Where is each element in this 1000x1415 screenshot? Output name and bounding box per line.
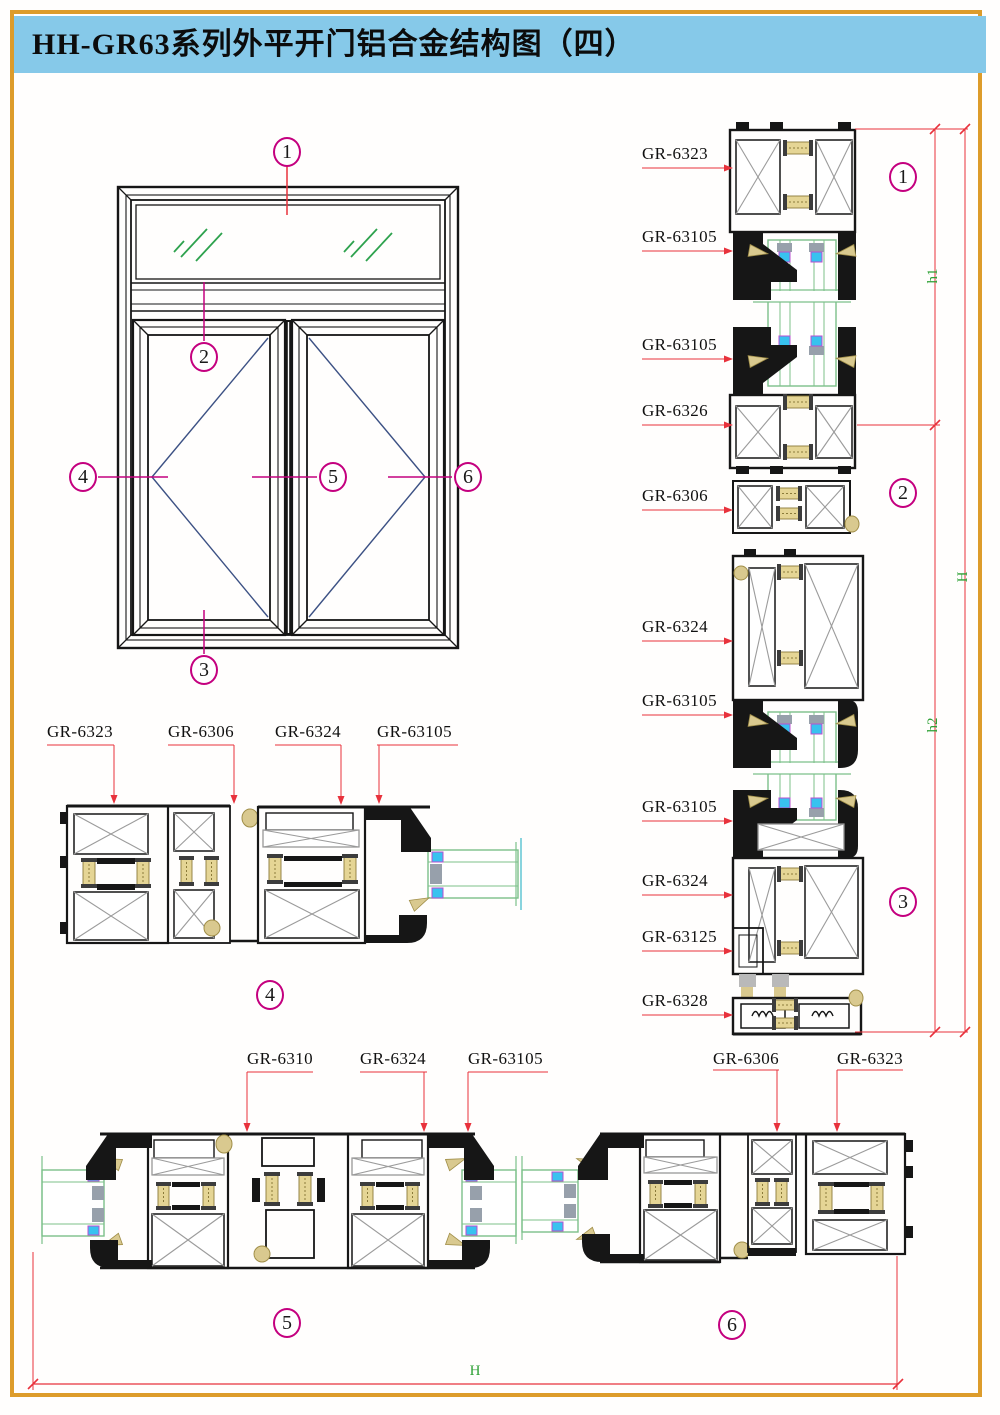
part-label-gr6310: GR-6310 bbox=[247, 1049, 313, 1069]
part-label-gr6324: GR-6324 bbox=[360, 1049, 426, 1069]
part-label-gr6324: GR-6324 bbox=[642, 871, 708, 891]
callout-number: 5 bbox=[328, 466, 338, 488]
part-label-gr6326: GR-6326 bbox=[642, 401, 708, 421]
callout-number: 6 bbox=[727, 1314, 737, 1336]
dim-label-h-total: H bbox=[954, 557, 972, 597]
dim-label-h-bottom: H bbox=[455, 1362, 495, 1380]
part-label-gr6323: GR-6323 bbox=[642, 144, 708, 164]
dim-label-h2: h2 bbox=[924, 705, 942, 745]
callout-number: 1 bbox=[898, 166, 908, 188]
drawing-sheet: HH-GR63系列外平开门铝合金结构图（四） GR-6323 GR-63105 … bbox=[0, 0, 1000, 1415]
part-label-gr6306: GR-6306 bbox=[713, 1049, 779, 1069]
callout-section-6: 6 bbox=[718, 1310, 746, 1340]
part-label-gr6323: GR-6323 bbox=[837, 1049, 903, 1069]
callout-number: 2 bbox=[199, 346, 209, 368]
callout-section-3: 3 bbox=[889, 887, 917, 917]
callout-section-2: 2 bbox=[889, 478, 917, 508]
callout-elevation-3: 3 bbox=[190, 655, 218, 685]
callout-elevation-4: 4 bbox=[69, 462, 97, 492]
part-label-gr63105: GR-63105 bbox=[642, 691, 717, 711]
part-label-gr63105: GR-63105 bbox=[642, 797, 717, 817]
callout-number: 3 bbox=[199, 659, 209, 681]
part-label-gr6324: GR-6324 bbox=[275, 722, 341, 742]
part-label-gr63105: GR-63105 bbox=[468, 1049, 543, 1069]
callout-section-4: 4 bbox=[256, 980, 284, 1010]
callout-number: 5 bbox=[282, 1312, 292, 1334]
dim-label-h1: h1 bbox=[924, 256, 942, 296]
callout-number: 6 bbox=[463, 466, 473, 488]
callout-number: 3 bbox=[898, 891, 908, 913]
part-label-gr63105: GR-63105 bbox=[377, 722, 452, 742]
callout-elevation-2: 2 bbox=[190, 342, 218, 372]
callout-number: 4 bbox=[78, 466, 88, 488]
callout-number: 2 bbox=[898, 482, 908, 504]
callout-elevation-1: 1 bbox=[273, 137, 301, 167]
part-label-gr6306: GR-6306 bbox=[642, 486, 708, 506]
part-label-gr6324: GR-6324 bbox=[642, 617, 708, 637]
callout-number: 4 bbox=[265, 984, 275, 1006]
part-label-gr6328: GR-6328 bbox=[642, 991, 708, 1011]
callout-section-1: 1 bbox=[889, 162, 917, 192]
part-label-gr63105: GR-63105 bbox=[642, 227, 717, 247]
callout-number: 1 bbox=[282, 141, 292, 163]
callout-elevation-6: 6 bbox=[454, 462, 482, 492]
cad-linework bbox=[0, 0, 1000, 1415]
part-label-gr63105: GR-63105 bbox=[642, 335, 717, 355]
callout-elevation-5: 5 bbox=[319, 462, 347, 492]
part-label-gr6323: GR-6323 bbox=[47, 722, 113, 742]
part-label-gr6306: GR-6306 bbox=[168, 722, 234, 742]
callout-section-5: 5 bbox=[273, 1308, 301, 1338]
part-label-gr63125: GR-63125 bbox=[642, 927, 717, 947]
